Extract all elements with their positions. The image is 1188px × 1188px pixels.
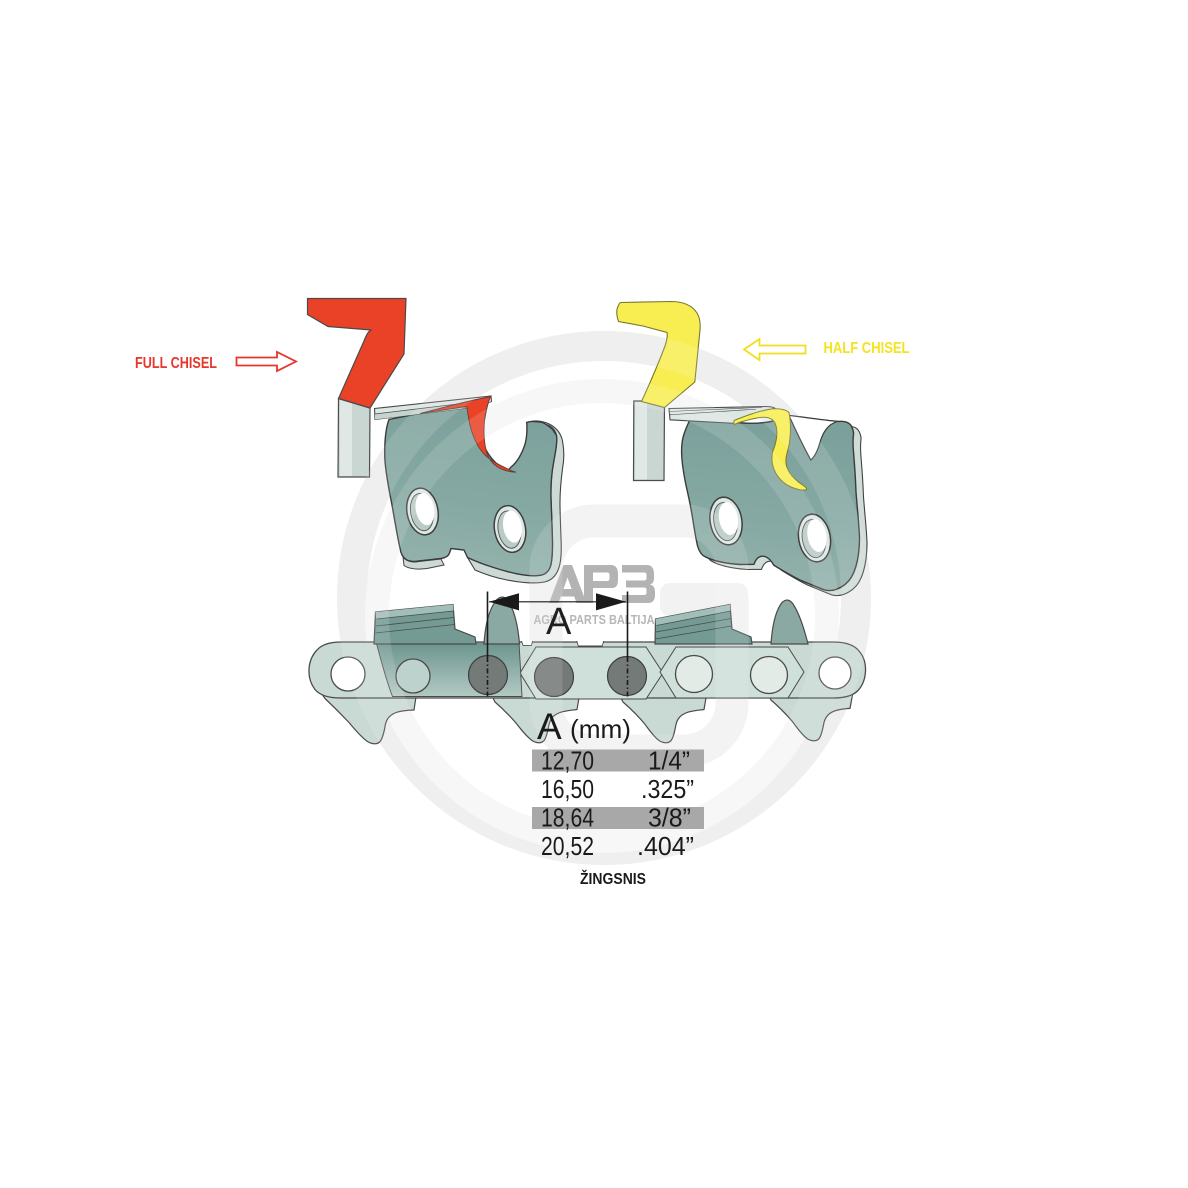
svg-text:A: A xyxy=(546,601,572,643)
svg-text:A: A xyxy=(537,706,562,747)
svg-text:HALF CHISEL: HALF CHISEL xyxy=(824,340,910,357)
svg-text:12,70: 12,70 xyxy=(541,748,594,776)
svg-text:ŽINGSNIS: ŽINGSNIS xyxy=(580,870,646,888)
svg-text:.325”: .325” xyxy=(641,776,694,804)
svg-text:FULL CHISEL: FULL CHISEL xyxy=(135,355,217,372)
svg-text:1/4”: 1/4” xyxy=(648,748,690,776)
svg-text:3/8”: 3/8” xyxy=(648,805,691,833)
svg-text:16,50: 16,50 xyxy=(541,776,594,804)
svg-text:.404”: .404” xyxy=(637,833,694,861)
svg-text:18,64: 18,64 xyxy=(541,805,594,833)
svg-text:(mm): (mm) xyxy=(570,714,631,744)
svg-text:20,52: 20,52 xyxy=(541,833,594,861)
